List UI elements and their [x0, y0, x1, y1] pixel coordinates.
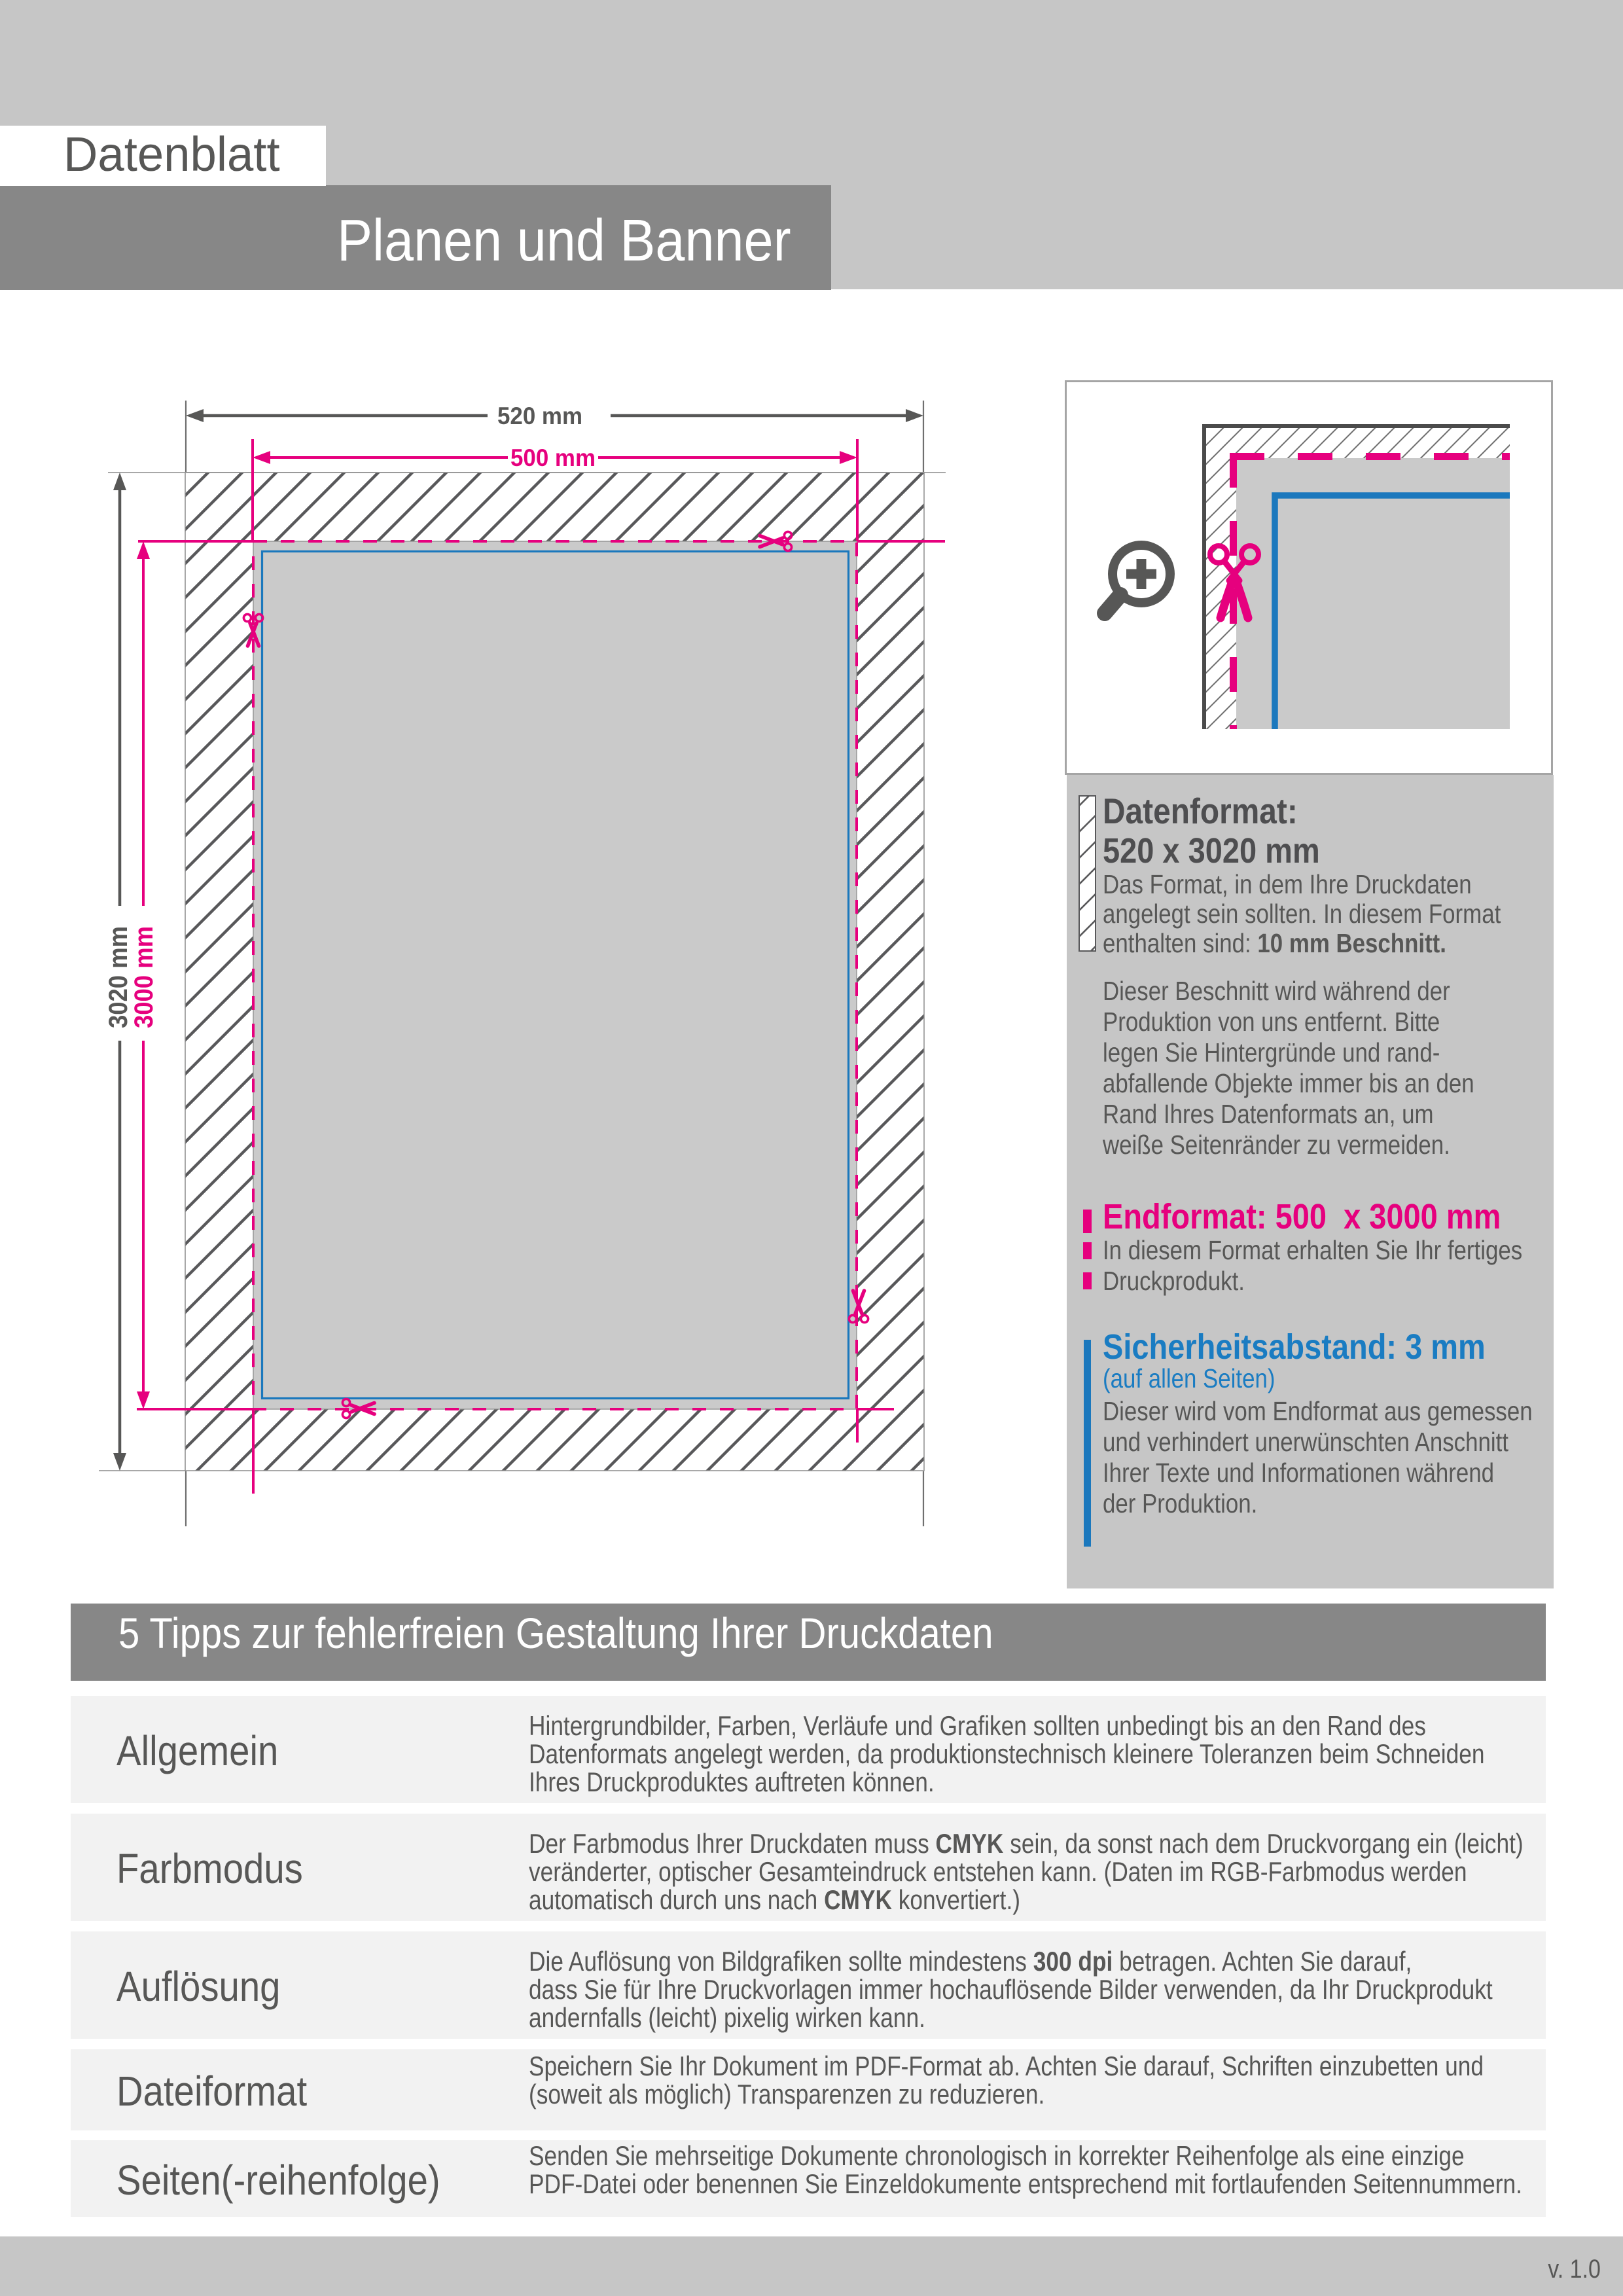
svg-text:3020 mm: 3020 mm [104, 926, 133, 1028]
svg-text:500 mm: 500 mm [510, 444, 596, 471]
svg-text:3000 mm: 3000 mm [130, 926, 158, 1028]
svg-text:520 mm: 520 mm [497, 403, 582, 429]
